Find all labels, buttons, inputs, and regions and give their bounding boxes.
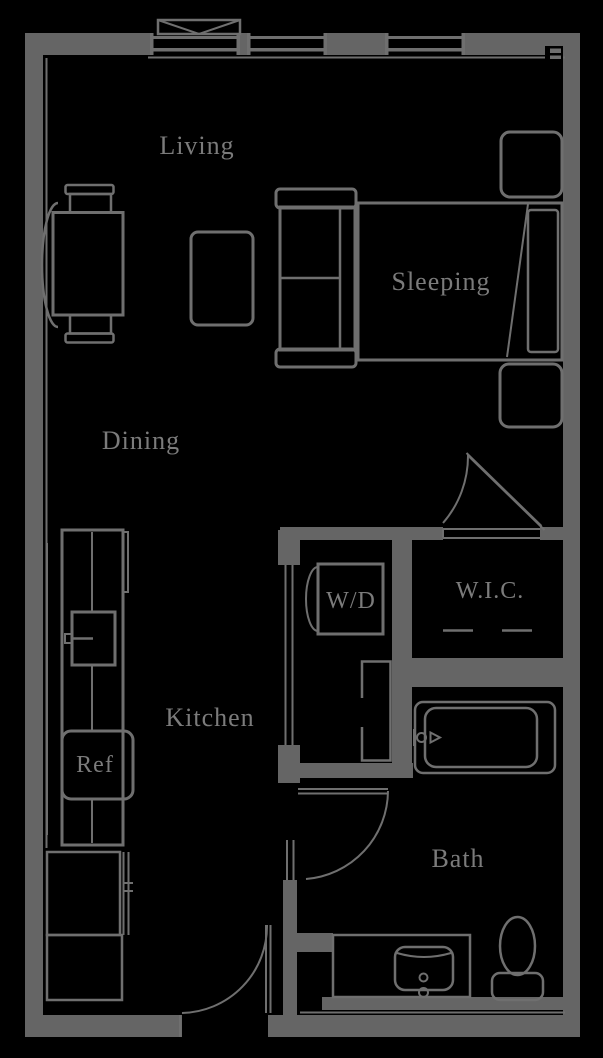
window-mullion	[240, 33, 247, 55]
bath-door	[298, 789, 388, 879]
bath-door-swing-arc	[306, 791, 388, 879]
bath-bottom-inner-line	[300, 1012, 565, 1014]
window	[247, 33, 327, 55]
right-wall	[563, 33, 580, 1037]
sofa-armrest	[276, 189, 356, 208]
entry-door	[182, 925, 271, 1013]
pantry-closet	[47, 852, 133, 935]
wic-bath-divider-wall	[412, 658, 565, 687]
wic-door-swing-arc	[443, 455, 468, 523]
vanity	[333, 935, 470, 997]
sofa	[276, 189, 356, 367]
toilet	[492, 917, 543, 1000]
tall-cabinet	[362, 662, 391, 761]
toilet-tank	[492, 973, 543, 1000]
corner-fixture-icon	[545, 46, 563, 60]
vanity-stub-wall	[297, 933, 333, 952]
entry-jamb-line	[179, 1015, 182, 1037]
bed-headboard	[528, 210, 558, 352]
floorplan-canvas: Ref W/D	[0, 0, 603, 1058]
awning-symbol-icon	[158, 20, 240, 34]
bed-blanket-fold	[507, 204, 528, 357]
coffee-table	[191, 232, 253, 325]
bottom-wall-left	[25, 1015, 182, 1037]
lower-cabinet	[47, 935, 122, 1000]
kitchen-label: Kitchen	[165, 703, 254, 732]
tub-faucet-icon	[414, 729, 440, 746]
nightstand	[501, 132, 562, 197]
sofa-armrest	[276, 349, 356, 367]
left-wall	[25, 33, 43, 1037]
window	[385, 33, 465, 55]
wd-closet-top-wall	[280, 527, 443, 540]
bathtub	[414, 702, 555, 773]
nightstand	[500, 364, 562, 427]
top-wall-inner-line	[148, 57, 565, 59]
dining-chair	[66, 185, 114, 213]
window-awning	[150, 20, 240, 55]
bath-left-wall	[283, 880, 297, 1015]
wd-closet-doors	[286, 565, 293, 745]
dining-set	[42, 185, 123, 343]
sleeping-label: Sleeping	[392, 267, 491, 296]
dining-label: Dining	[102, 426, 180, 455]
dining-table-round-end	[42, 203, 58, 327]
wd-label: W/D	[326, 588, 376, 614]
counter-end-panel	[123, 532, 128, 592]
closet-bath-divider-wall	[392, 540, 412, 778]
vanity-sink	[395, 947, 453, 997]
stove	[65, 612, 115, 665]
washer-dryer: W/D	[306, 564, 383, 634]
wic-door	[443, 453, 545, 538]
sink-drain	[420, 974, 428, 982]
bath-label: Bath	[431, 844, 484, 873]
toilet-bowl	[500, 917, 535, 975]
wd-closet-left-stub-top	[278, 530, 300, 565]
dining-chair	[66, 315, 114, 343]
kitchen-bath-wall	[290, 763, 413, 778]
ref-label: Ref	[76, 752, 114, 778]
living-label: Living	[159, 131, 234, 160]
bottom-wall-right	[268, 1015, 580, 1037]
top-wall-pier	[327, 33, 385, 55]
wd-closet-left-stub-bottom	[278, 745, 300, 783]
wic-label: W.I.C.	[456, 578, 524, 604]
washer-door-arc	[306, 567, 318, 631]
entry-door-swing-arc	[182, 925, 267, 1013]
dining-table	[53, 213, 123, 316]
top-wall-segment	[43, 33, 150, 55]
